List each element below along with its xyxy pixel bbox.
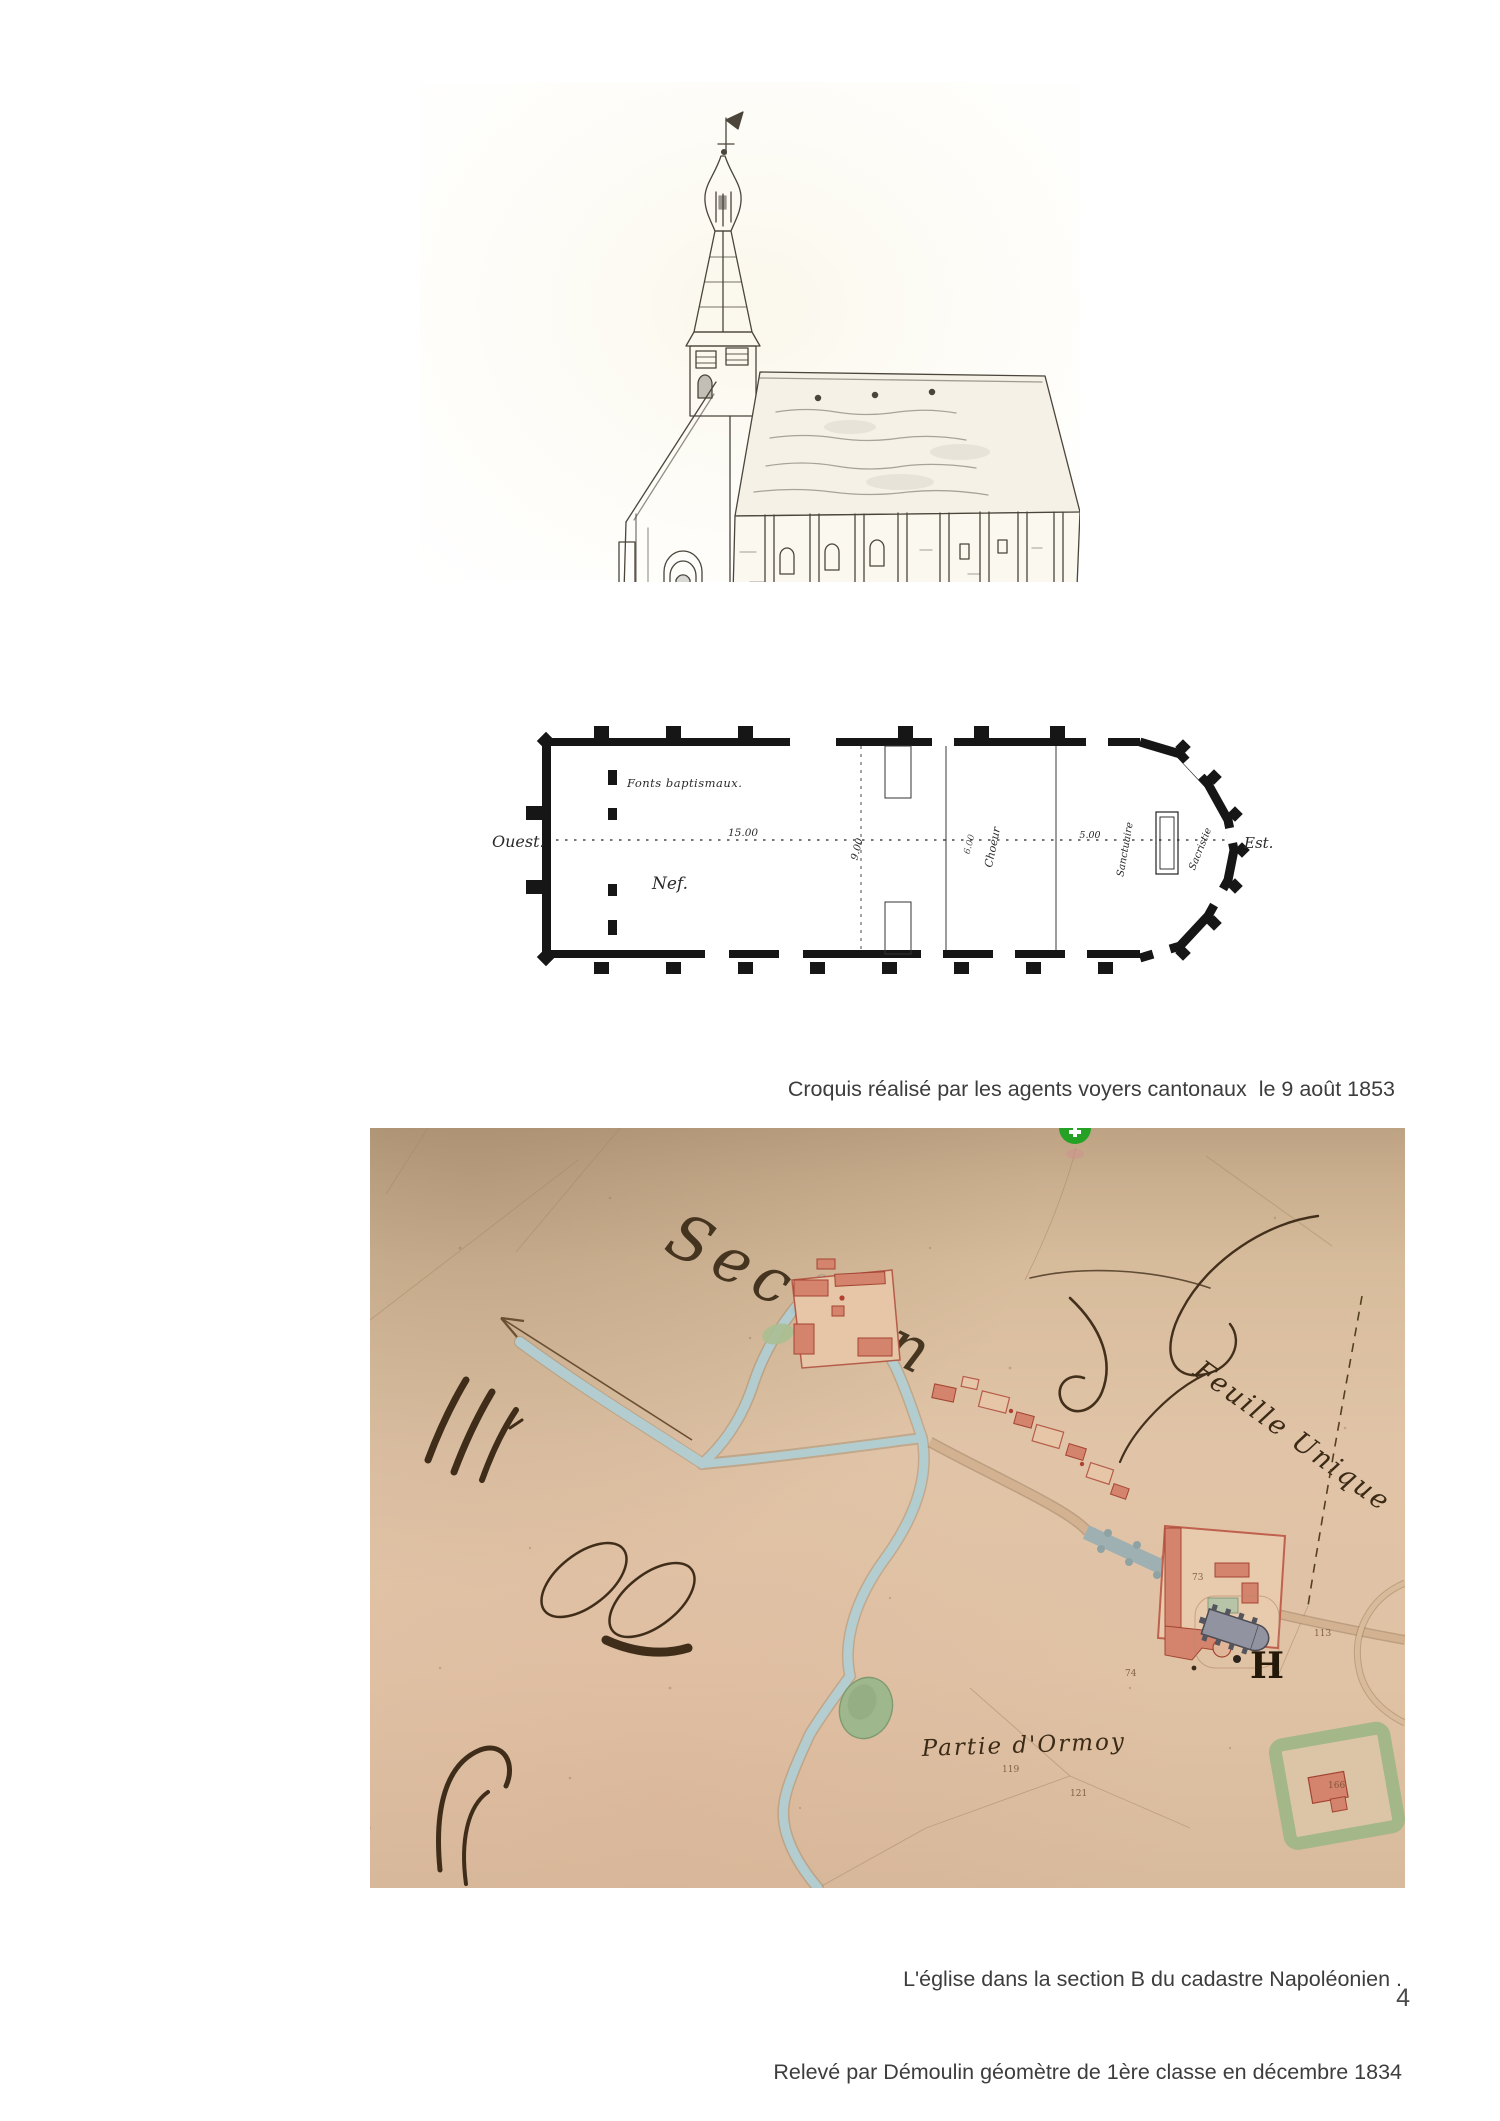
parcel-number: 121 [1070,1789,1087,1799]
plan-label-fonts-baptismaux: Fonts baptismaux. [626,776,742,790]
south-wall [732,512,1080,582]
nave-roof [735,372,1080,516]
plan-label-est: Est. [1243,834,1273,852]
plan-dim-sanctuaire: 5.00 [1079,830,1100,841]
church-sketch-figure [420,82,1080,582]
cadastre-map-image: Section Feuille Unique [370,1128,1405,1888]
parcel-number: 73 [1192,1573,1204,1583]
plan-label-sanctuaire: Sanctuaire [1115,821,1135,877]
plan-dim-nef: 15.00 [728,827,758,839]
plan-walls [526,726,1140,974]
map-caption: L'église dans la section B du cadastre N… [598,1902,1402,2121]
church-sketch-drawing [420,82,1080,582]
sketch-caption-line1: Croquis réalisé par les agents voyers ca… [600,1074,1395,1105]
plan-label-ouest: Ouest. [492,832,545,851]
cadastre-map-figure: Section Feuille Unique [370,1128,1405,1888]
bell-lantern [705,150,741,231]
west-facade [619,382,730,582]
page-number: 4 [1355,1984,1410,2013]
wall-window-gaps [705,737,1108,959]
plan-label-nef: Nef. [651,874,688,894]
parcel-number: 119 [1002,1765,1019,1775]
map-letter-h: H [1250,1645,1284,1687]
parcel-number: 74 [1125,1669,1137,1679]
plan-dim-avant-choeur: 9.00 [849,837,866,862]
church-floor-plan-drawing: Ouest. Est. Fonts baptismaux. Nef. 15.00… [480,700,1300,1000]
map-caption-line2: Relevé par Démoulin géomètre de 1ère cla… [598,2057,1402,2088]
plan-label-sacristie: Sacristie [1187,826,1214,872]
plan-label-choeur: Choeur [982,825,1003,869]
spire [686,231,760,346]
map-caption-line1: L'église dans la section B du cadastre N… [598,1964,1402,1995]
parcel-number: 113 [1314,1629,1331,1639]
floor-plan-figure: Ouest. Est. Fonts baptismaux. Nef. 15.00… [480,700,1300,1000]
weathervane-icon [718,112,743,154]
document-page: Ouest. Est. Fonts baptismaux. Nef. 15.00… [0,0,1500,2121]
parcel-number: 166 [1328,1781,1345,1791]
plan-dim-choeur: 6.00 [963,833,978,855]
